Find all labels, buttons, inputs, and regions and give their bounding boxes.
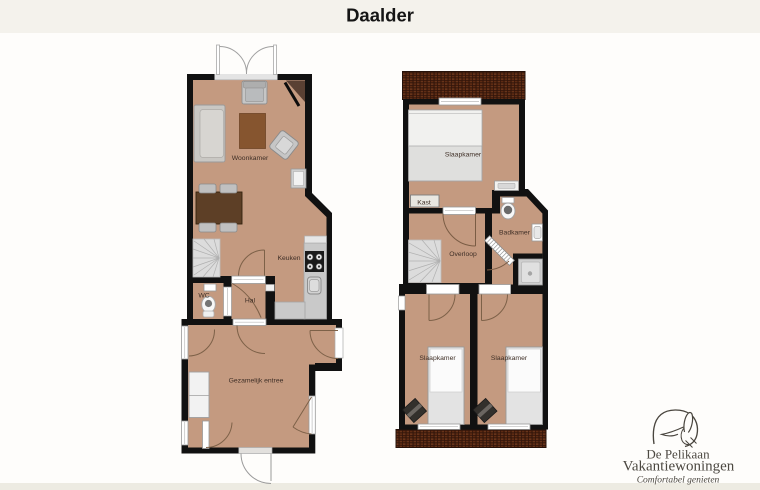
svg-text:Gezamelijk entree: Gezamelijk entree <box>229 378 284 385</box>
svg-text:Overloop: Overloop <box>449 251 477 258</box>
svg-text:Hal: Hal <box>245 298 256 305</box>
svg-text:Comfortabel genieten: Comfortabel genieten <box>637 475 720 486</box>
svg-text:Slaapkamer: Slaapkamer <box>491 355 528 362</box>
svg-text:Woonkamer: Woonkamer <box>232 155 269 162</box>
svg-text:Badkamer: Badkamer <box>499 230 531 237</box>
svg-text:Vakantiewoningen: Vakantiewoningen <box>623 459 735 475</box>
svg-text:Daalder: Daalder <box>346 5 414 26</box>
svg-text:Kast: Kast <box>417 200 431 207</box>
svg-text:Slaapkamer: Slaapkamer <box>419 355 456 362</box>
svg-text:Keuken: Keuken <box>277 255 300 262</box>
svg-text:WC: WC <box>198 293 209 300</box>
svg-text:Slaapkamer: Slaapkamer <box>445 152 482 159</box>
